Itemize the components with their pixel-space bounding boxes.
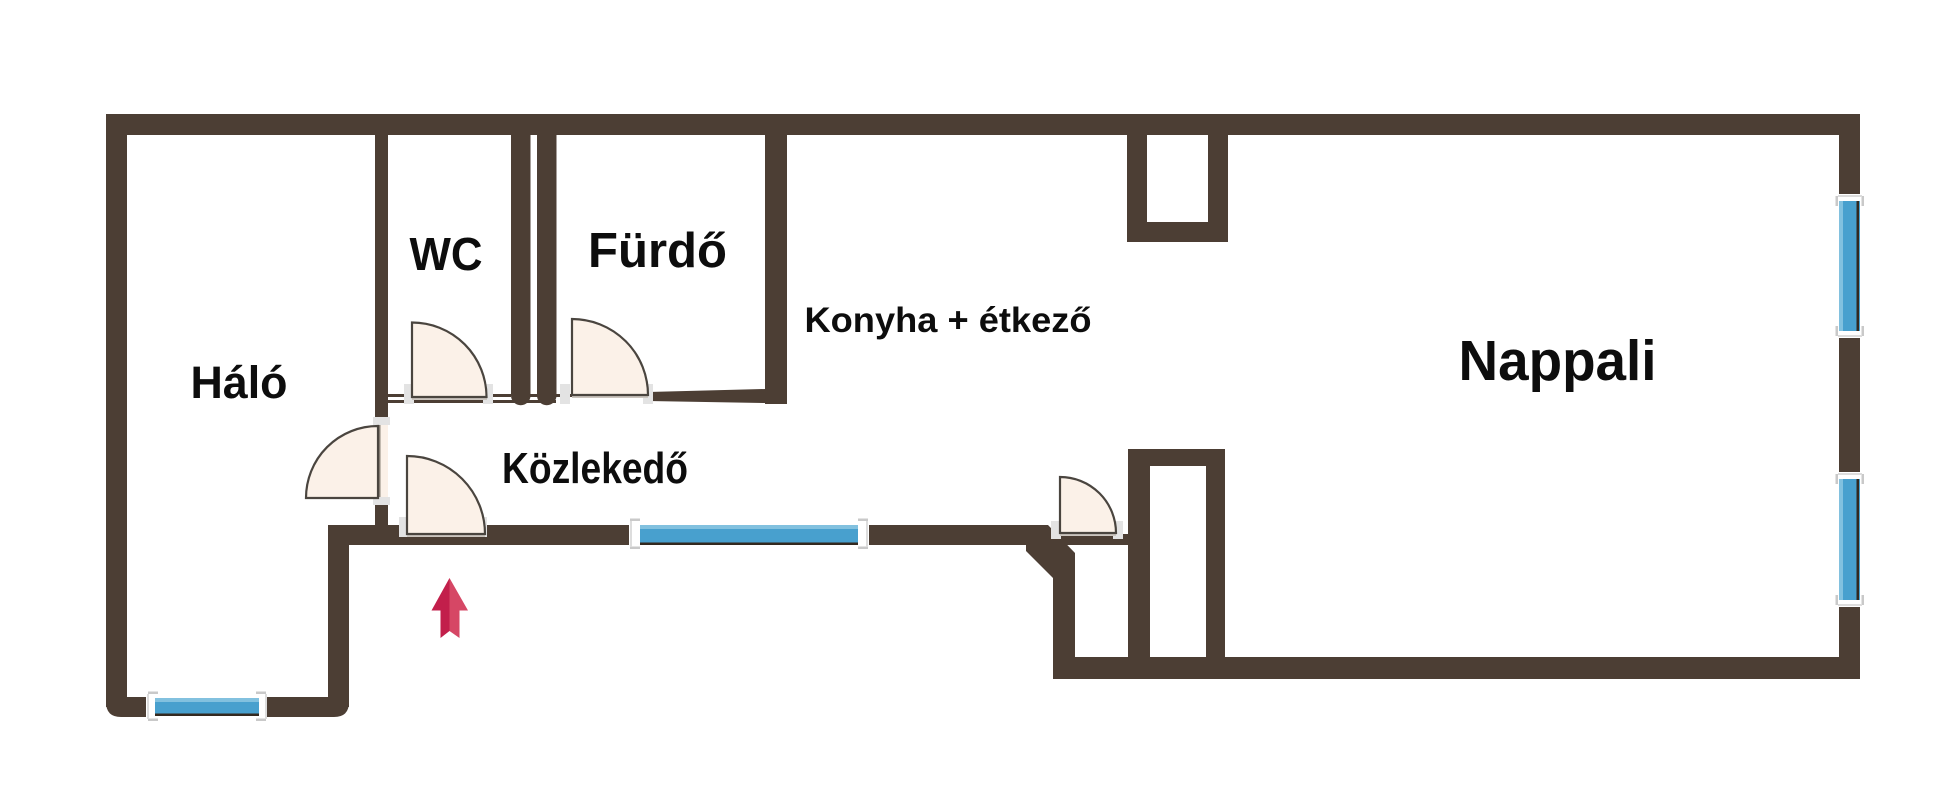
svg-text:Háló: Háló [191,357,288,408]
svg-text:Közlekedő: Közlekedő [502,445,688,493]
svg-text:Nappali: Nappali [1459,329,1657,393]
svg-text:Fürdő: Fürdő [588,224,727,278]
svg-text:WC: WC [410,228,483,280]
svg-text:Konyha + étkező: Konyha + étkező [805,301,1092,340]
